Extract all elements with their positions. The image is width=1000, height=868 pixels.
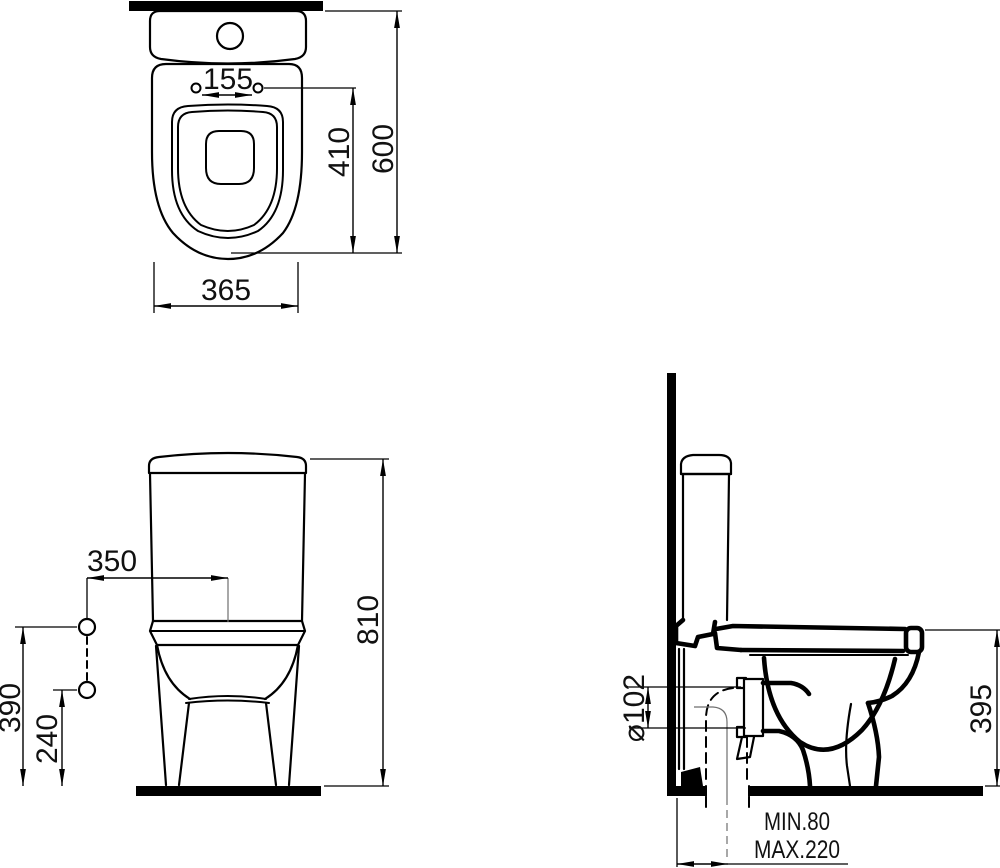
top-view: 155 410 600 365 — [129, 1, 402, 313]
dim-label-155: 155 — [203, 63, 253, 96]
dim-label-min-80: MIN.80 — [764, 808, 830, 836]
seat-front-bumper — [906, 628, 922, 652]
wall-section-bar-side — [667, 373, 676, 796]
seat-fixing-hole-right — [254, 84, 263, 93]
seat-inner-ring-inner — [178, 111, 277, 232]
dim-label-350: 350 — [87, 545, 137, 578]
seat-fixing-hole-left — [192, 84, 201, 93]
floor-bar-left — [667, 786, 707, 796]
dim-hole-spacing: 155 — [202, 63, 253, 96]
cistern-side-lid — [681, 455, 731, 474]
cistern-outline — [150, 11, 306, 64]
floor-section-bar — [136, 786, 321, 796]
cistern-lid — [149, 453, 306, 473]
dim-label-395: 395 — [965, 684, 998, 734]
outlet-spigot-bottom — [763, 731, 810, 786]
side-view: ⌀102 395 MIN.80 MAX.220 — [618, 373, 1000, 867]
dim-total-height: 810 — [310, 459, 389, 786]
dim-label-max-220: MAX.220 — [754, 836, 840, 864]
dim-total-depth: 600 — [231, 11, 402, 253]
dim-label-600: 600 — [367, 124, 400, 174]
pedestal-front-inner — [846, 704, 851, 786]
front-view: 350 390 240 810 — [0, 453, 389, 796]
water-inlet-lower — [79, 682, 95, 698]
dim-width: 365 — [154, 262, 298, 313]
pedestal-front-leg — [868, 703, 879, 786]
dim-outlet-distance: MIN.80 MAX.220 — [677, 798, 848, 867]
pedestal-inner-right — [266, 703, 276, 785]
dim-rim-height: 395 — [925, 630, 1000, 786]
floor-bar-right — [749, 786, 983, 796]
seat-top-profile — [716, 626, 905, 629]
bowl-bottom-line-1 — [189, 696, 266, 699]
cistern-side-left — [150, 474, 153, 621]
pan-rear-ledge — [676, 620, 715, 646]
water-inlet-upper — [79, 619, 95, 635]
dim-label-390: 390 — [0, 683, 27, 733]
dim-label-diameter-102: ⌀102 — [618, 674, 651, 742]
bowl-bottom-line-2 — [186, 701, 269, 704]
pedestal-inner-left — [179, 703, 189, 785]
seat-underside — [741, 650, 903, 651]
dim-label-810: 810 — [352, 595, 385, 645]
bowl-curve-right — [265, 645, 298, 699]
seat-band — [150, 621, 305, 645]
dim-label-365: 365 — [201, 274, 251, 307]
dim-inlet-height-lower: 240 — [31, 690, 77, 786]
flush-button — [217, 23, 243, 49]
bowl-curve-left — [157, 645, 190, 699]
wall-section-bar — [129, 1, 323, 11]
dim-inlet-offset: 350 — [87, 545, 228, 618]
outlet-stub — [737, 737, 754, 759]
technical-drawing-page: 155 410 600 365 — [0, 0, 1000, 868]
seat-inner-ring-outer — [172, 105, 283, 239]
dim-label-410: 410 — [323, 127, 356, 177]
dim-label-240: 240 — [31, 714, 64, 764]
seat-hinge — [715, 633, 741, 650]
cistern-side-right — [302, 474, 305, 621]
bowl-water-area — [206, 131, 254, 184]
cistern-side-front — [727, 475, 729, 620]
hidden-pipe-elbow — [706, 688, 733, 784]
toilet-dimension-drawing: 155 410 600 365 — [0, 0, 1000, 868]
outlet-flange — [744, 679, 763, 736]
